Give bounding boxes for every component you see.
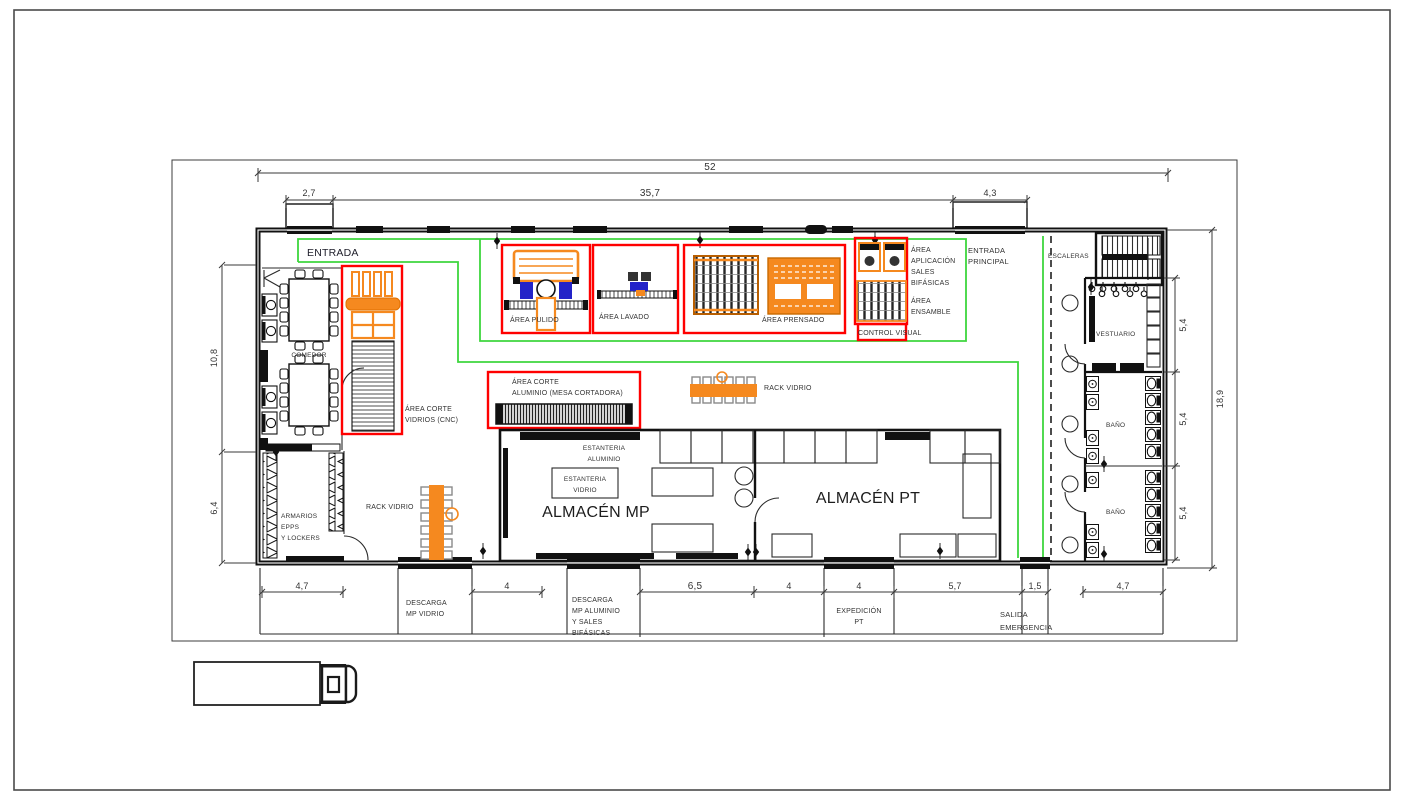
wall-basin-icon: [262, 320, 277, 342]
control-visual-label: CONTROL VISUAL: [858, 330, 922, 337]
descarga-vidrio-label-1: DESCARGA: [406, 600, 447, 607]
estanteria-aluminio-label-2: ALUMINIO: [587, 456, 620, 463]
salida-emergencia-label-2: EMERGENCIA: [1000, 623, 1052, 632]
area-pulido-label: ÁREA PULIDO: [510, 315, 559, 324]
dim-right-3: 5,4: [1178, 506, 1188, 519]
ensamble-rack: [857, 281, 906, 321]
expedicion-label-2: PT: [854, 619, 864, 626]
prensado-rack: [694, 256, 758, 314]
aplicacion-label-4: BIFÁSICAS: [911, 278, 949, 287]
bano1-label: BAÑO: [1106, 420, 1125, 429]
estanteria-aluminio-shelf: [520, 432, 640, 440]
dim-bottom-6: 5,7: [948, 581, 961, 591]
lockers-column: [263, 453, 277, 558]
dining-table: [280, 270, 338, 350]
corte-vidrios-label-1: ÁREA CORTE: [405, 404, 452, 413]
almacen-pt-label: ALMACÉN PT: [816, 488, 920, 507]
escaleras-label: ESCALERAS: [1048, 253, 1089, 260]
estanteria-aluminio-label-1: ESTANTERIA: [583, 445, 626, 452]
wall-basin-icon: [262, 386, 277, 408]
dim-bottom-5: 4: [856, 581, 861, 591]
lavado-blue-unit: [630, 282, 648, 291]
bano2-label: BAÑO: [1106, 507, 1125, 516]
armarios-label-3: Y LOCKERS: [281, 535, 320, 542]
pulido-blue-unit: [559, 282, 572, 299]
dim-bottom-3: 6,5: [688, 581, 703, 592]
vestuario-lockers: [1147, 284, 1160, 367]
area-prensado-label: ÁREA PRENSADO: [762, 315, 825, 324]
estanteria-vidrio-label-2: VIDRIO: [573, 487, 597, 494]
lockers-column: [329, 453, 343, 531]
armarios-label-1: ARMARIOS: [281, 513, 318, 520]
cutting-table: [496, 404, 632, 424]
ensamble-label-1: ÁREA: [911, 296, 931, 305]
rack-vidrio-label-1: RACK VIDRIO: [764, 385, 812, 392]
dining-table: [280, 355, 338, 435]
descarga-vidrio-label-2: MP VIDRIO: [406, 611, 445, 618]
descarga-aluminio-label-1: DESCARGA: [572, 597, 613, 604]
area-lavado-label: ÁREA LAVADO: [599, 312, 650, 321]
bench: [1120, 363, 1144, 371]
dim-top-seg2: 35,7: [640, 188, 661, 199]
dim-right-total: 18,9: [1215, 390, 1225, 408]
entrada-vestibule: [286, 204, 333, 228]
bench: [1089, 296, 1095, 342]
dim-bottom-7: 1,5: [1028, 581, 1041, 591]
comedor-label: COMEDOR: [291, 352, 326, 359]
armarios-label-2: EPPS: [281, 524, 300, 531]
almacen-mp-label: ALMACÉN MP: [542, 502, 650, 521]
descarga-aluminio-label-4: BIFÁSICAS: [572, 628, 610, 637]
entrada-principal-label-2: PRINCIPAL: [968, 257, 1009, 266]
wall-basin-icon: [262, 412, 277, 434]
dim-bottom-1: 4,7: [295, 581, 308, 591]
entrada-principal-label-1: ENTRADA: [968, 246, 1005, 255]
corte-aluminio-label-2: ALUMINIO (MESA CORTADORA): [512, 390, 623, 397]
dim-left-upper: 10,8: [209, 349, 219, 367]
pulido-blue-unit: [520, 282, 533, 299]
ensamble-label-2: ENSAMBLE: [911, 309, 951, 316]
corte-vidrios-label-2: VIDRIOS (CNC): [405, 417, 458, 424]
aplicacion-label-2: APLICACIÓN: [911, 256, 955, 265]
dim-top-seg1: 2,7: [302, 188, 315, 198]
floor-plan-page: COMEDOR ARMARIOS EPPS Y LOCKERS ENTRADA: [0, 0, 1402, 801]
aplicacion-label-1: ÁREA: [911, 245, 931, 254]
bench: [1092, 363, 1116, 371]
dim-bottom-4: 4: [786, 581, 791, 591]
estanteria-vidrio-label-1: ESTANTERIA: [564, 476, 607, 483]
dim-bottom-2: 4: [504, 581, 509, 591]
corte-aluminio-label-1: ÁREA CORTE: [512, 377, 559, 386]
dim-right-2: 5,4: [1178, 412, 1188, 425]
descarga-aluminio-label-3: Y SALES: [572, 619, 603, 626]
dim-bottom-8: 4,7: [1116, 581, 1129, 591]
wall-basin-icon: [262, 294, 277, 316]
salida-emergencia-label-1: SALIDA: [1000, 610, 1028, 619]
dim-left-lower: 6,4: [209, 501, 219, 514]
glass-sheet-stack: [352, 341, 394, 431]
aplicacion-label-3: SALES: [911, 269, 935, 276]
rack-vidrio-label-2: RACK VIDRIO: [366, 504, 414, 511]
vestuario-label: VESTUARIO: [1096, 331, 1135, 338]
descarga-aluminio-label-2: MP ALUMINIO: [572, 608, 620, 615]
entrada-label: ENTRADA: [307, 247, 359, 259]
dim-right-1: 5,4: [1178, 318, 1188, 331]
expedicion-label-1: EXPEDICIÓN: [836, 606, 881, 615]
dim-top-total: 52: [704, 162, 716, 173]
entrada-principal-vestibule: [953, 202, 1027, 228]
floor-plan-canvas: COMEDOR ARMARIOS EPPS Y LOCKERS ENTRADA: [0, 0, 1402, 801]
dim-top-seg3: 4,3: [983, 188, 996, 198]
cnc-machine: [346, 272, 400, 338]
truck-icon: [194, 662, 356, 705]
